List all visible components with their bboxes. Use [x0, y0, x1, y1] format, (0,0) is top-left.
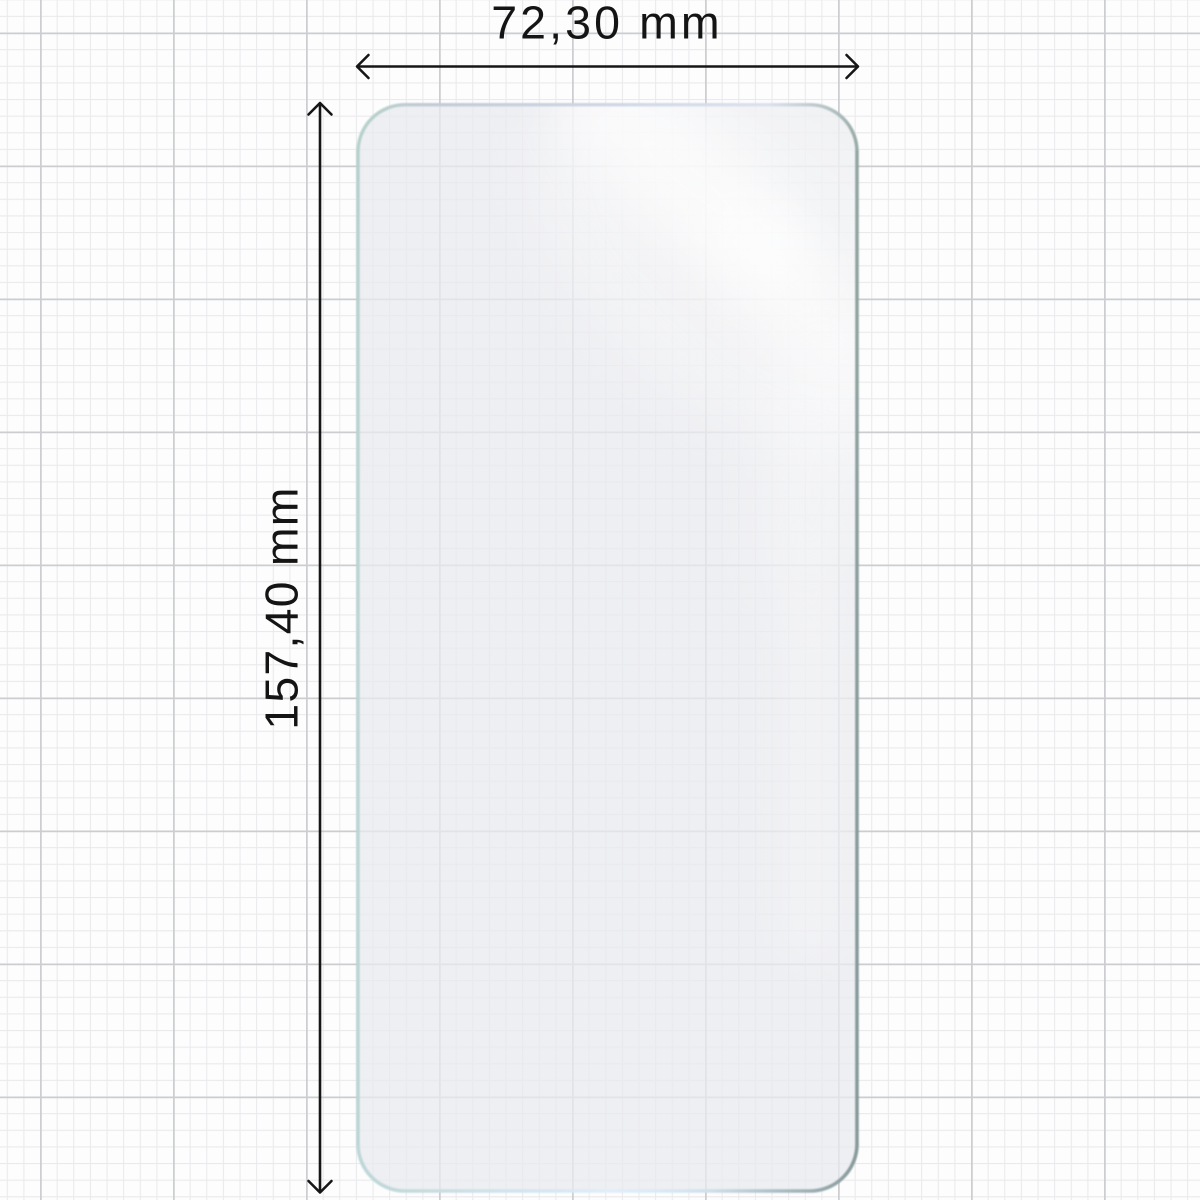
svg-text:157,40 mm: 157,40 mm	[256, 486, 308, 729]
svg-text:72,30 mm: 72,30 mm	[491, 0, 723, 49]
